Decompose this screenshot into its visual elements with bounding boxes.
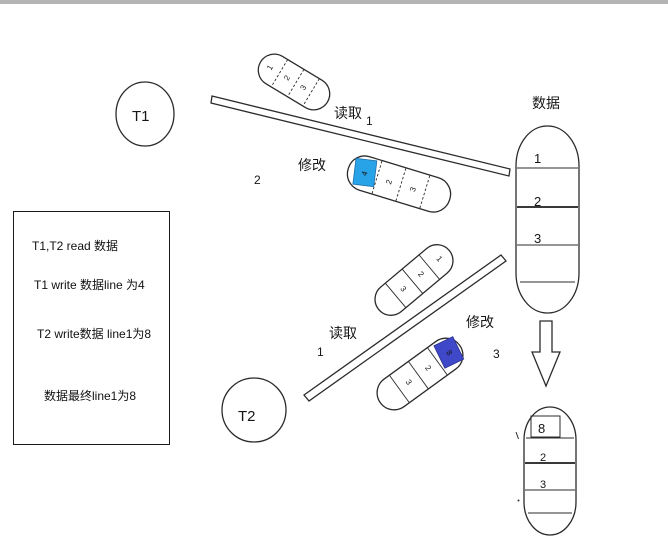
t1-write-label: 修改 <box>298 157 326 173</box>
store-row-2: 2 <box>534 194 541 209</box>
t2-write-label: 修改 <box>466 314 494 330</box>
t2-label: T2 <box>238 408 256 425</box>
diagram-canvas: T1 T2 数据 1 2 3 1 2 3 <box>0 0 668 558</box>
notes-box: T1,T2 read 数据 T1 write 数据line 为4 T2 writ… <box>13 211 170 445</box>
final-store-capsule <box>524 407 576 535</box>
final-row-3: 3 <box>540 479 546 491</box>
final-row-1: 8 <box>538 421 545 436</box>
stray-mark <box>516 432 519 439</box>
note-line: T1,T2 read 数据 <box>32 237 118 254</box>
t1-read-copy-capsule: 1 2 3 <box>252 48 335 116</box>
capsule-outline <box>252 48 335 116</box>
stray-mark <box>518 500 520 502</box>
t1-read-label: 读取 <box>334 105 362 121</box>
final-row-2: 2 <box>540 452 546 464</box>
t1-write-copy-capsule: 4 2 3 <box>343 152 455 216</box>
store-row-1: 1 <box>534 151 541 166</box>
t2-read-label: 读取 <box>329 325 357 341</box>
note-line: T2 write数据 line1为8 <box>37 325 151 342</box>
data-store-title: 数据 <box>532 95 560 111</box>
t1-label: T1 <box>132 108 150 125</box>
t2-read-step: 1 <box>317 345 324 359</box>
t2-read-copy-capsule: 1 2 3 <box>368 238 459 322</box>
note-line: 数据最终line1为8 <box>44 387 136 404</box>
t1-write-step: 2 <box>254 173 261 187</box>
result-arrow-icon <box>532 321 560 386</box>
note-line: T1 write 数据line 为4 <box>34 276 145 293</box>
data-store-capsule <box>516 126 579 313</box>
t2-write-step: 3 <box>493 347 500 361</box>
capsule-outline <box>368 238 459 322</box>
t1-read-step: 1 <box>366 114 373 128</box>
store-row-3: 3 <box>534 231 541 246</box>
